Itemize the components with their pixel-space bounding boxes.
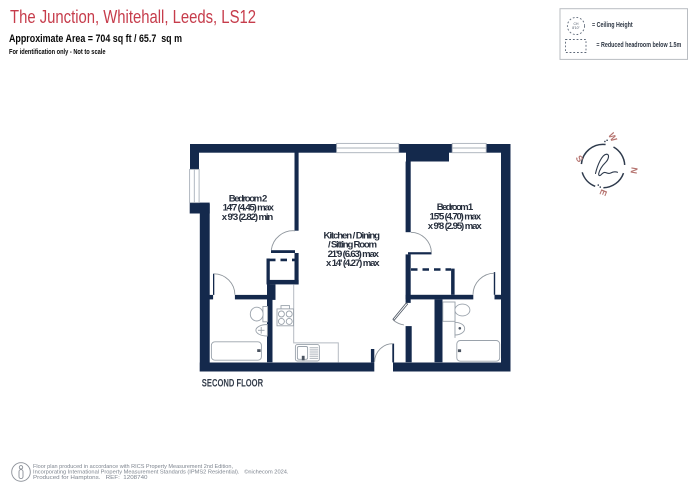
svg-text:x 14' (4.27) max: x 14' (4.27) max — [326, 258, 380, 269]
svg-text:x 9'8 (2.95) max: x 9'8 (2.95) max — [428, 221, 483, 232]
svg-text:Produced for Hamptons. REF:: Produced for Hamptons. REF: 1208740 — [33, 475, 148, 481]
svg-text:SECOND FLOOR: SECOND FLOOR — [202, 378, 263, 390]
svg-text:x 9'3 (2.82) min: x 9'3 (2.82) min — [222, 212, 274, 223]
